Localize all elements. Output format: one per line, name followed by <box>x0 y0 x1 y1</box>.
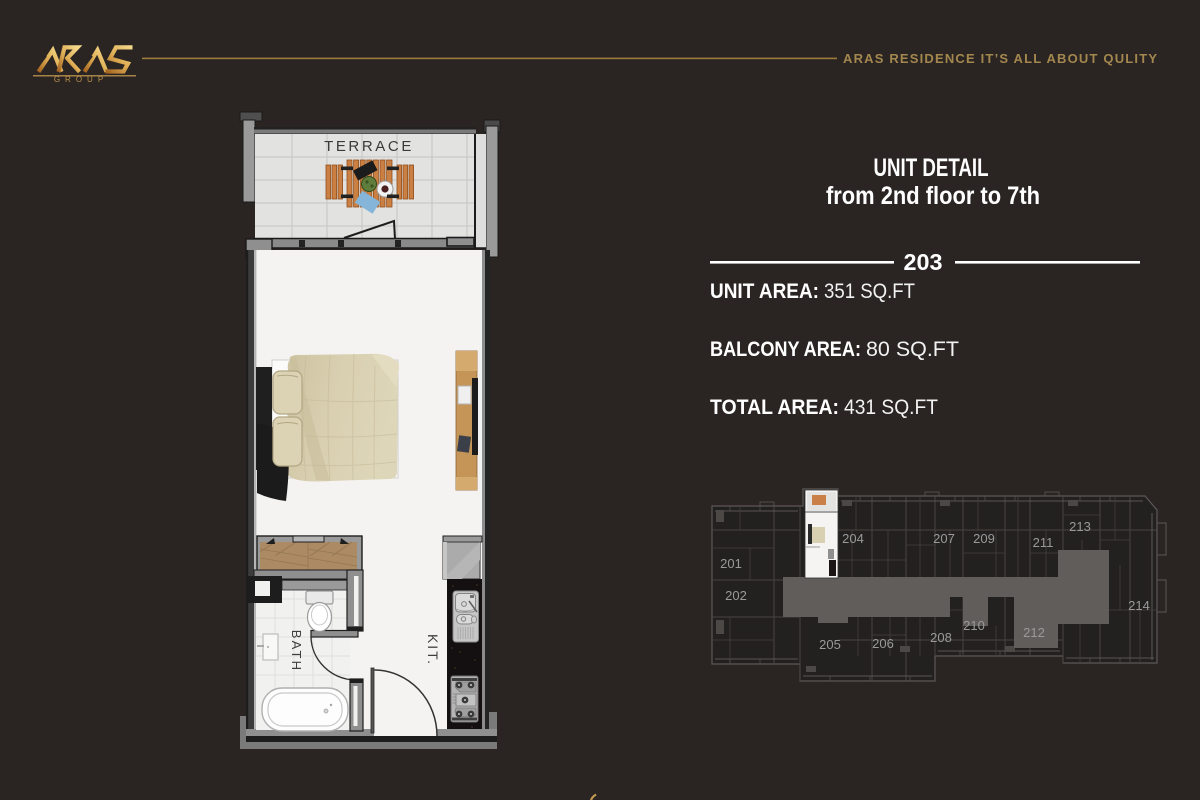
svg-text:203: 203 <box>904 249 943 275</box>
svg-text:431 SQ.FT: 431 SQ.FT <box>844 395 938 419</box>
svg-text:202: 202 <box>725 588 747 603</box>
svg-text:201: 201 <box>720 556 742 571</box>
svg-text:212: 212 <box>1023 625 1045 640</box>
svg-text:208: 208 <box>930 630 952 645</box>
svg-text:206: 206 <box>872 636 894 651</box>
svg-text:211: 211 <box>1033 535 1054 550</box>
svg-text:214: 214 <box>1128 598 1150 613</box>
svg-text:KIT.: KIT. <box>425 634 441 666</box>
svg-text:BALCONY AREA:: BALCONY AREA: <box>710 337 861 361</box>
svg-text:UNIT AREA:: UNIT AREA: <box>710 279 819 303</box>
svg-text:209: 209 <box>973 531 995 546</box>
svg-text:351 SQ.FT: 351 SQ.FT <box>824 279 915 303</box>
svg-text:from 2nd floor to 7th: from 2nd floor to 7th <box>826 182 1040 210</box>
svg-text:207: 207 <box>933 531 955 546</box>
svg-text:205: 205 <box>819 637 841 652</box>
svg-text:GROUP: GROUP <box>54 75 108 84</box>
svg-text:213: 213 <box>1069 519 1091 534</box>
svg-text:TERRACE: TERRACE <box>324 138 414 155</box>
svg-text:ARAS RESIDENCE IT’S ALL ABOUT: ARAS RESIDENCE IT’S ALL ABOUT QULITY <box>843 51 1157 66</box>
svg-text:UNIT DETAIL: UNIT DETAIL <box>874 154 989 182</box>
svg-text:BATH: BATH <box>289 630 304 673</box>
svg-text:TOTAL AREA:: TOTAL AREA: <box>710 395 839 419</box>
svg-text:210: 210 <box>963 618 985 633</box>
svg-text:204: 204 <box>842 531 864 546</box>
svg-text:80 SQ.FT: 80 SQ.FT <box>866 337 959 361</box>
